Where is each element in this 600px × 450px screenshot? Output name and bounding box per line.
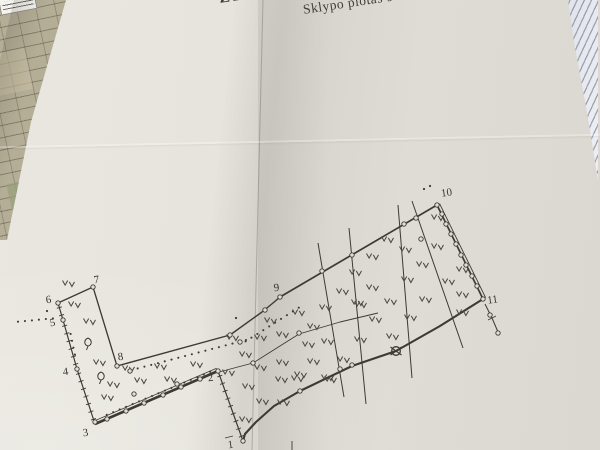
survey-point-circle: [278, 295, 282, 299]
survey-point-circle: [464, 263, 468, 267]
survey-point-circle: [115, 364, 119, 368]
grass-symbol: [350, 270, 362, 276]
vertex-label-8: 8: [117, 351, 125, 364]
grass-symbol: [135, 378, 147, 384]
survey-point-circle: [105, 417, 109, 421]
grass-symbol: [191, 362, 203, 368]
grass-symbol: [102, 395, 114, 401]
grass-symbol: [367, 285, 379, 291]
survey-point-circle: [454, 242, 458, 246]
grass-symbol: [165, 377, 177, 383]
vertex-label-9: 9: [273, 282, 281, 295]
survey-point-circle: [198, 377, 202, 381]
grass-symbol: [243, 384, 255, 390]
grass-symbol: [69, 302, 81, 308]
grass-symbol: [240, 417, 252, 423]
boundary-edges: [57, 201, 498, 450]
grass-symbol: [355, 337, 367, 343]
survey-point-circle: [440, 212, 444, 216]
survey-point-circle: [238, 340, 242, 344]
survey-point-circle: [414, 216, 418, 220]
grass-symbol: [405, 315, 417, 321]
plan-svg: 1234567891011: [0, 0, 600, 450]
edge-mid: [219, 313, 378, 372]
grass-symbol: [338, 357, 350, 363]
survey-point-circle: [298, 389, 302, 393]
survey-point-circle: [124, 409, 128, 413]
survey-point-circle: [251, 361, 255, 365]
grass-symbol: [108, 382, 120, 388]
grass-symbol: [308, 324, 320, 330]
edge-10-11b: [440, 204, 486, 298]
vertex-label-4: 4: [62, 366, 70, 379]
grass-symbol: [94, 360, 106, 366]
tree-symbol: [85, 338, 91, 346]
vertex-label-5: 5: [49, 317, 57, 330]
grass-symbol: [457, 292, 469, 298]
grass-symbol: [293, 310, 305, 316]
survey-point-circle: [475, 284, 479, 288]
survey-point-circle: [132, 392, 136, 396]
vertex-label-7: 7: [93, 274, 101, 287]
vertex-label-6: 6: [45, 294, 53, 307]
survey-point-circle: [459, 253, 463, 257]
survey-point-circle: [402, 222, 406, 226]
survey-point-circle: [481, 297, 485, 301]
survey-point-circle: [216, 369, 220, 373]
edge-i1: [318, 243, 344, 397]
grass-symbol: [265, 318, 277, 324]
grass-symbol: [443, 279, 455, 285]
grass-symbol: [420, 297, 432, 303]
survey-point-circle: [350, 253, 354, 257]
survey-point-circle: [241, 439, 245, 443]
vertex-label-3: 3: [82, 427, 90, 440]
survey-point-circle: [297, 331, 301, 335]
survey-point-circle: [496, 331, 500, 335]
edge-4-6: [58, 303, 77, 369]
survey-point-circle: [350, 363, 354, 367]
grass-symbol: [370, 317, 382, 323]
grass-symbol: [84, 319, 96, 325]
survey-point-circle: [320, 269, 324, 273]
grass-symbol: [385, 299, 397, 305]
survey-point-circle: [179, 385, 183, 389]
grass-symbols: [63, 215, 469, 423]
vertex-label-11: 11: [487, 293, 499, 306]
survey-point-circle: [263, 308, 267, 312]
edge-6-7: [58, 287, 93, 303]
edge-ref-1a: [225, 436, 233, 438]
edge-i4: [412, 201, 463, 348]
survey-markers: [46, 185, 500, 443]
grass-symbol: [320, 305, 332, 311]
survey-point-circle: [470, 274, 474, 278]
survey-point-circle: [61, 318, 65, 322]
survey-point-circle: [444, 222, 448, 226]
survey-point-circle: [93, 420, 97, 424]
grass-symbol: [63, 281, 75, 287]
edge-8-9: [117, 297, 280, 366]
edge-7-8: [93, 287, 117, 366]
grass-symbol: [277, 332, 289, 338]
vertex-labels: 1234567891011: [45, 186, 499, 450]
grass-symbol: [432, 244, 444, 250]
grass-symbol: [322, 339, 334, 345]
survey-point-circle: [128, 369, 132, 373]
vertex-label-1: 1: [227, 439, 234, 450]
tree-symbol: [98, 372, 104, 380]
vertex-label-10: 10: [440, 186, 453, 199]
survey-point-circle: [75, 367, 79, 371]
survey-point-circle: [488, 313, 492, 317]
grass-symbol: [367, 254, 379, 260]
grass-symbol: [155, 364, 167, 370]
grass-symbol: [276, 377, 288, 383]
photo-of-land-plot-plan: ŽEMĖS SK Sklypo plotas 90 1234567891011: [0, 0, 600, 450]
survey-point-circle: [449, 232, 453, 236]
grass-symbol: [308, 359, 320, 365]
grass-symbol: [337, 289, 349, 295]
survey-point-circle: [435, 203, 439, 207]
survey-point-circle: [56, 301, 60, 305]
edge-2-3b: [94, 368, 217, 421]
survey-point-circle: [419, 237, 423, 241]
survey-point-circle: [228, 333, 232, 337]
grass-symbol: [402, 277, 414, 283]
grass-symbol: [255, 365, 267, 371]
grass-symbol: [240, 352, 252, 358]
grass-symbol: [257, 399, 269, 405]
survey-point-circle: [175, 382, 179, 386]
grass-symbol: [277, 360, 289, 366]
grass-symbol: [387, 334, 399, 340]
survey-point-circle: [161, 393, 165, 397]
grass-symbol: [303, 342, 315, 348]
grass-symbol: [417, 262, 429, 268]
edge-9-10: [280, 205, 437, 297]
benchmark-symbol: [391, 347, 402, 356]
grass-symbol: [255, 335, 267, 341]
survey-point-circle: [338, 367, 342, 371]
survey-point-circle: [142, 401, 146, 405]
